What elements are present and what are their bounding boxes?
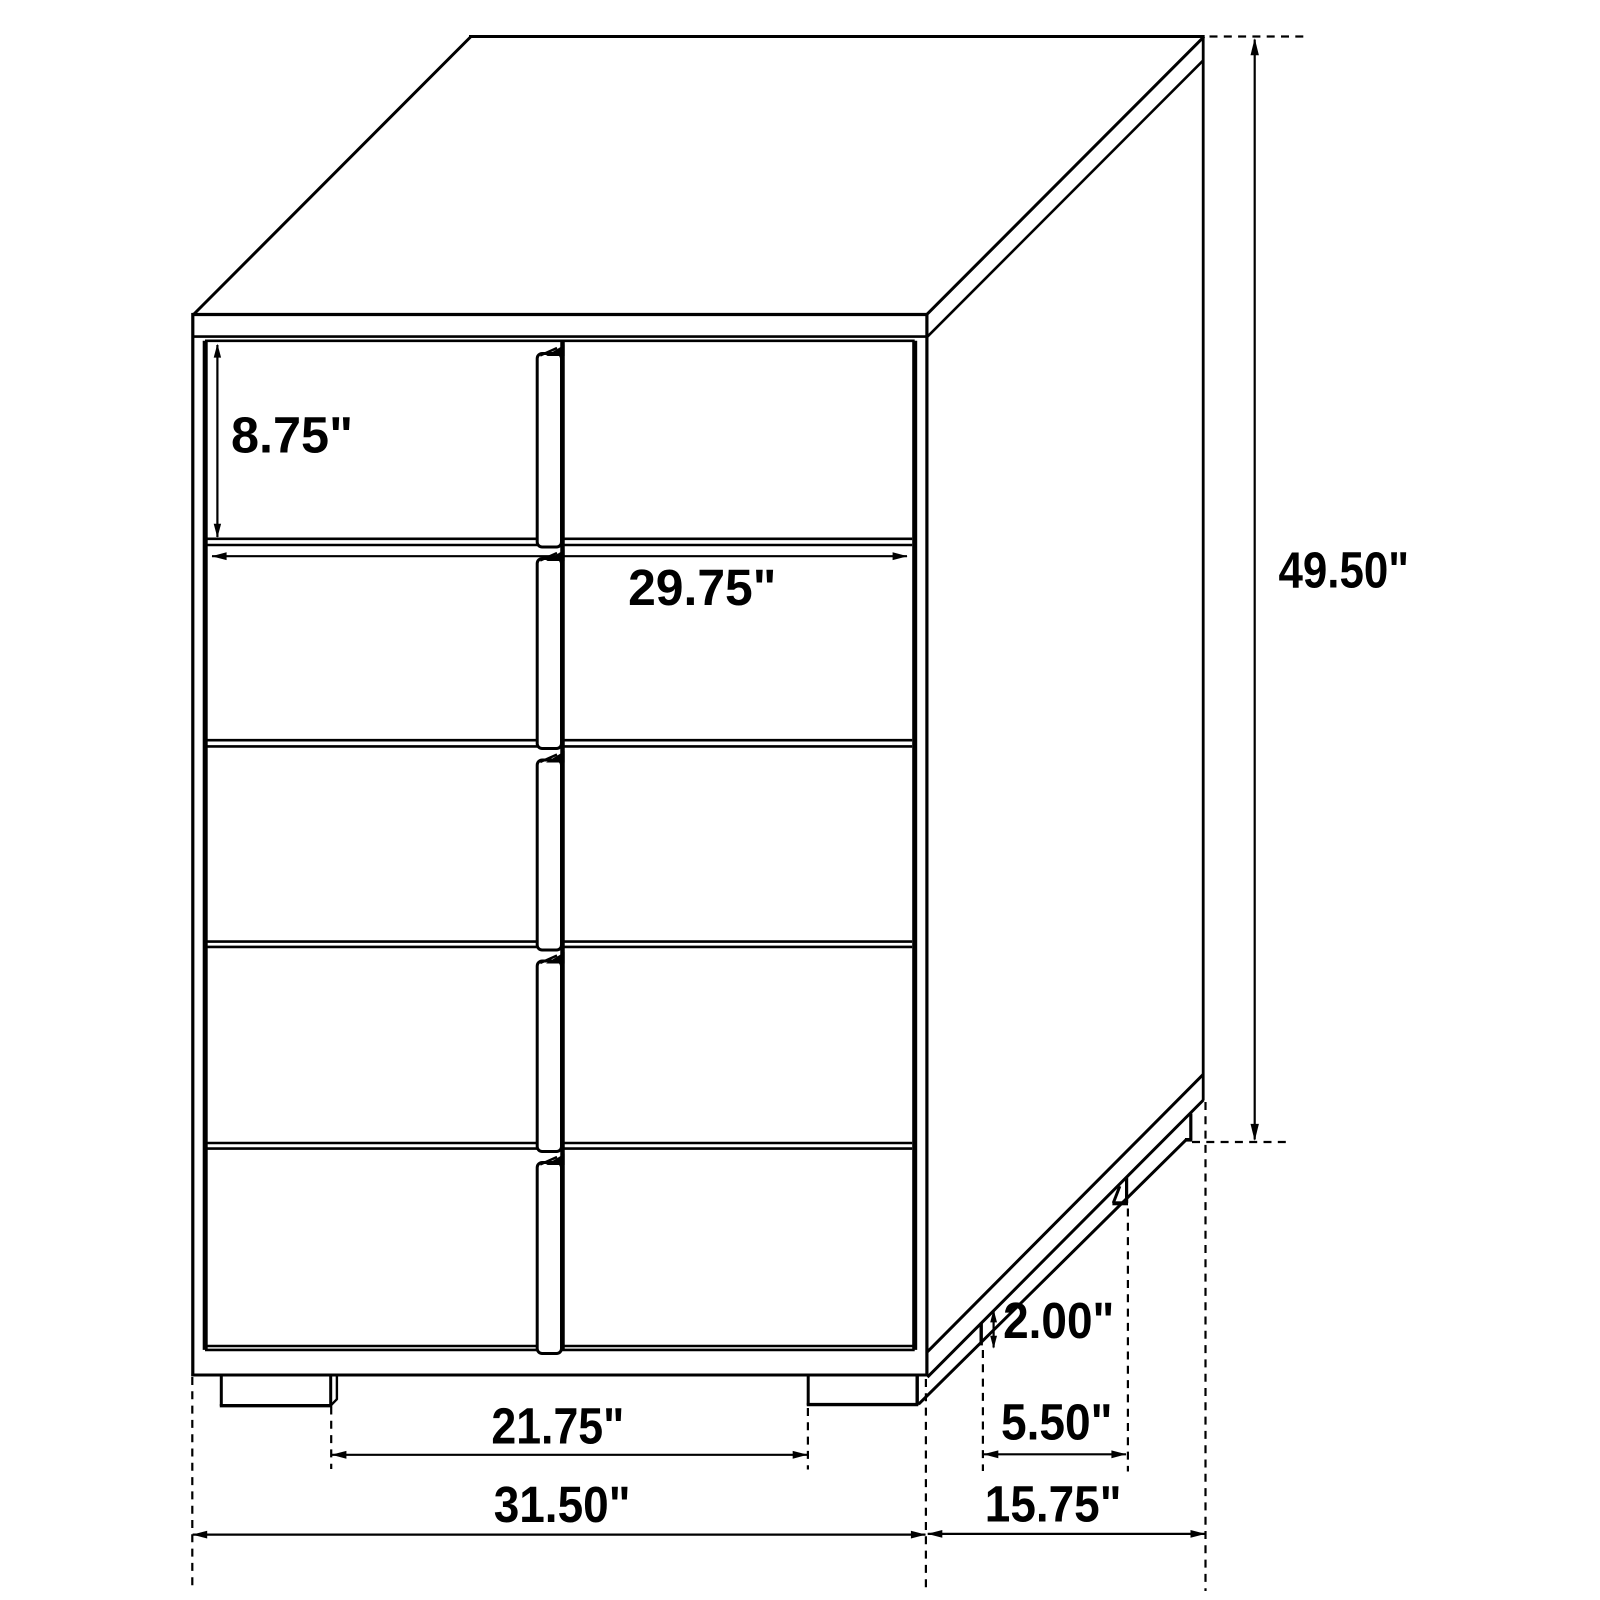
svg-text:31.50": 31.50": [494, 1476, 631, 1533]
svg-text:8.75": 8.75": [231, 407, 353, 464]
svg-text:49.50": 49.50": [1279, 542, 1410, 599]
svg-text:2.00": 2.00": [1003, 1292, 1114, 1349]
svg-text:21.75": 21.75": [491, 1398, 624, 1455]
svg-text:15.75": 15.75": [985, 1476, 1122, 1533]
svg-text:29.75": 29.75": [628, 559, 776, 616]
svg-text:5.50": 5.50": [1001, 1394, 1113, 1451]
